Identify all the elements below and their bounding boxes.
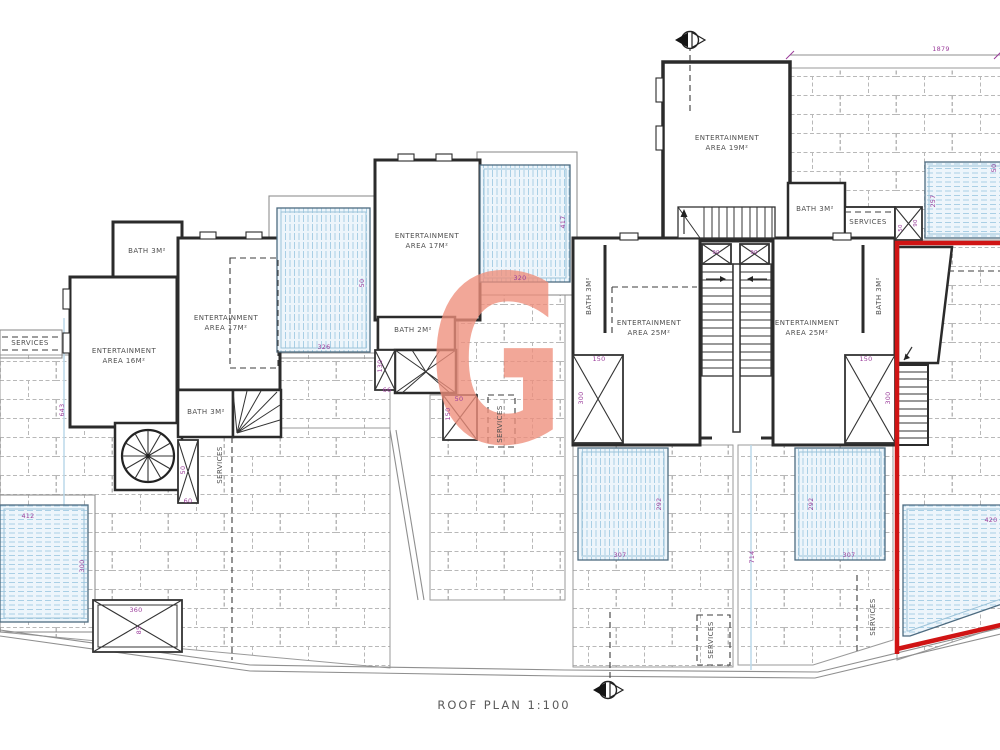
room-unit17a	[178, 238, 280, 390]
room-red-stair	[898, 365, 928, 445]
room-unit16	[70, 277, 177, 427]
pool-4	[795, 448, 885, 560]
room-bath-17b	[378, 317, 455, 350]
room-bath-19	[788, 183, 845, 240]
pool-top-right	[925, 162, 1000, 238]
pool-bottom-left	[0, 505, 88, 622]
section-marker-bottom	[593, 682, 623, 699]
section-marker-top	[675, 32, 705, 49]
terrace-below-pool1	[280, 353, 390, 428]
pool-1	[277, 208, 370, 352]
plan-title: ROOF PLAN 1:100	[437, 698, 570, 712]
room-unit17b	[375, 160, 480, 320]
pool-2	[480, 165, 570, 282]
room-bath-17a	[178, 390, 233, 437]
room-bath-16	[113, 222, 182, 280]
pool-3	[578, 448, 668, 560]
roof-plan-canvas: G ENTERTAINMENT AREA 19M² ENTERTAINMENT …	[0, 0, 1000, 750]
floor-plan-svg	[0, 0, 1000, 750]
